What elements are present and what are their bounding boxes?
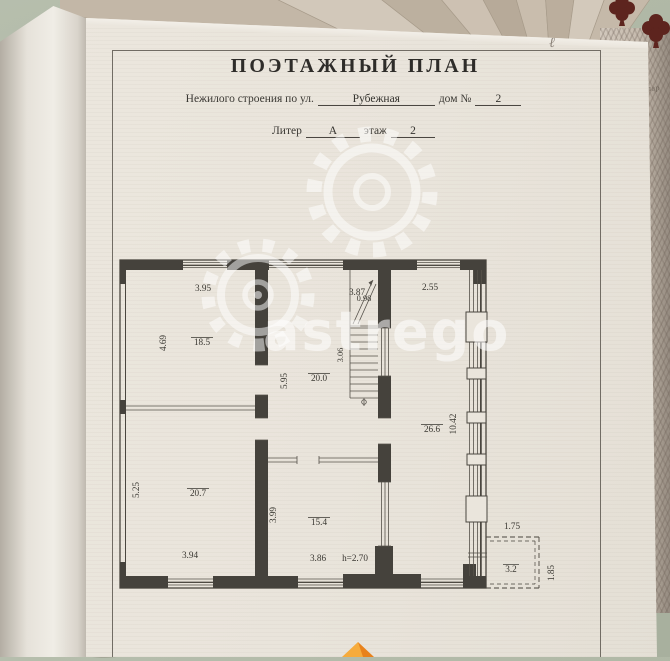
astrego-watermark-text: astrego — [263, 300, 510, 363]
partition-walls — [126, 406, 378, 464]
balcony-area-label: 3.2 — [505, 564, 517, 574]
clover-icon — [609, 0, 635, 26]
room-width-label: 3.86 — [310, 553, 326, 563]
house-number-value: 2 — [475, 93, 521, 106]
ceiling-height-label: h=2.70 — [342, 553, 368, 563]
balcony-width-label: 1.75 — [504, 521, 520, 531]
room-area-label: 15.4 — [311, 517, 327, 527]
room-height-label: 3.99 — [268, 507, 278, 523]
room-area-label: 26.6 — [424, 424, 440, 434]
document-title: ПОЭТАЖНЫЙ ПЛАН — [112, 55, 599, 78]
room-width-label: 3.94 — [182, 550, 198, 560]
curled-page-edge — [0, 6, 97, 657]
handwritten-mark: ℓ — [549, 36, 555, 52]
room-area-label: 20.7 — [190, 488, 206, 498]
balcony-height-label: 1.85 — [546, 565, 556, 581]
room-height-label: 5.25 — [131, 482, 141, 498]
room-height-label: 10.42 — [448, 413, 458, 434]
logo-mark — [330, 640, 390, 657]
balcony-outline — [486, 537, 539, 588]
document-page: ПОЭТАЖНЫЙ ПЛАН Нежилого строения по ул. … — [0, 0, 670, 657]
gear-icon — [314, 134, 430, 250]
